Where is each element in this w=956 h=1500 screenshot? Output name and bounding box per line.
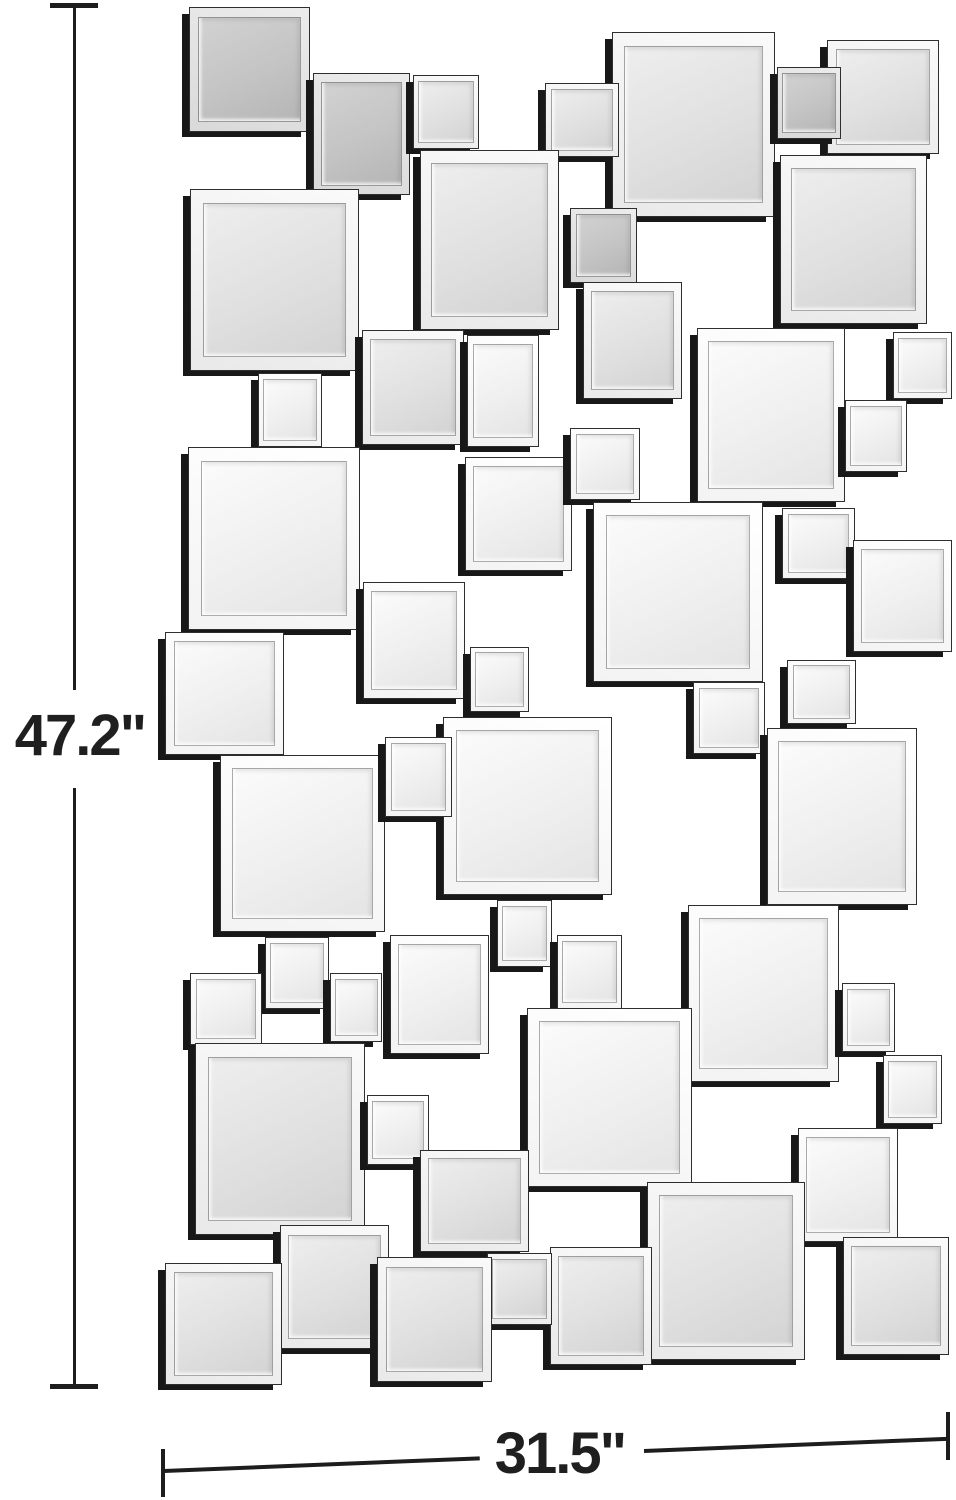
mirror-tile — [190, 973, 262, 1045]
height-dimension-label: 47.2" — [0, 702, 160, 769]
mirror-tile — [377, 1257, 492, 1382]
mirror-tile — [467, 335, 539, 447]
height-dim-bottom-cap — [50, 1384, 98, 1389]
mirror-tile — [195, 1043, 365, 1235]
product-dimension-diagram: 47.2" 31.5" — [0, 0, 956, 1500]
mirror-tile — [363, 582, 465, 699]
mirror-tile — [420, 150, 559, 330]
mirror-tile — [330, 973, 382, 1042]
mirror-tile — [570, 428, 640, 500]
mirror-tile — [827, 40, 939, 154]
mirror-tile — [413, 75, 479, 149]
mirror-tile — [527, 1008, 692, 1187]
mirror-tile — [780, 155, 927, 324]
mirror-tile — [767, 728, 917, 905]
mirror-tile — [893, 332, 952, 399]
mirror-tile — [845, 400, 907, 472]
mirror-tile — [190, 189, 359, 371]
height-dim-line-lower — [73, 788, 76, 1386]
mirror-tile — [220, 755, 385, 932]
mirror-tile — [165, 1263, 282, 1385]
mirror-tile — [362, 330, 464, 445]
mirror-tile — [390, 935, 489, 1054]
mirror-tile — [497, 900, 552, 967]
mirror-tile — [782, 508, 855, 579]
height-dim-line-upper — [73, 6, 76, 690]
mirror-tile — [697, 328, 845, 502]
mirror-tile — [853, 540, 952, 652]
mirror-tile — [265, 937, 329, 1009]
mirror-tile — [470, 647, 529, 712]
width-dim-left-cap — [161, 1449, 165, 1497]
mirror-tile — [647, 1182, 805, 1360]
mirror-tile — [420, 1150, 529, 1252]
width-dimension-label: 31.5" — [455, 1420, 665, 1487]
mirror-tile — [688, 905, 839, 1082]
mirror-tile — [842, 983, 895, 1052]
width-dim-right-cap — [946, 1412, 950, 1460]
mirror-tile — [777, 67, 841, 139]
mirror-tile — [385, 737, 452, 817]
mirror-tile — [883, 1055, 942, 1124]
mirror-tile — [787, 660, 856, 724]
mirror-tile — [570, 208, 637, 283]
mirror-tile — [189, 7, 310, 132]
mirror-tile — [693, 682, 765, 754]
mirror-tile — [550, 1247, 652, 1365]
mirror-tile — [313, 73, 410, 195]
mirror-tile — [258, 373, 322, 447]
mirror-tile — [280, 1225, 389, 1349]
mirror-tile — [487, 1253, 552, 1325]
mirror-tile — [557, 935, 622, 1009]
mirror-tile — [443, 717, 612, 895]
mirror-tile — [612, 32, 775, 217]
mirror-tile — [583, 282, 682, 399]
mirror-tile — [593, 502, 763, 682]
mirror-tile — [843, 1237, 949, 1355]
mirror-tile — [545, 83, 619, 157]
mirror-tile — [465, 457, 572, 571]
mirror-tile — [188, 447, 360, 630]
mirror-tile — [165, 632, 284, 755]
mirror-tile — [798, 1128, 898, 1242]
